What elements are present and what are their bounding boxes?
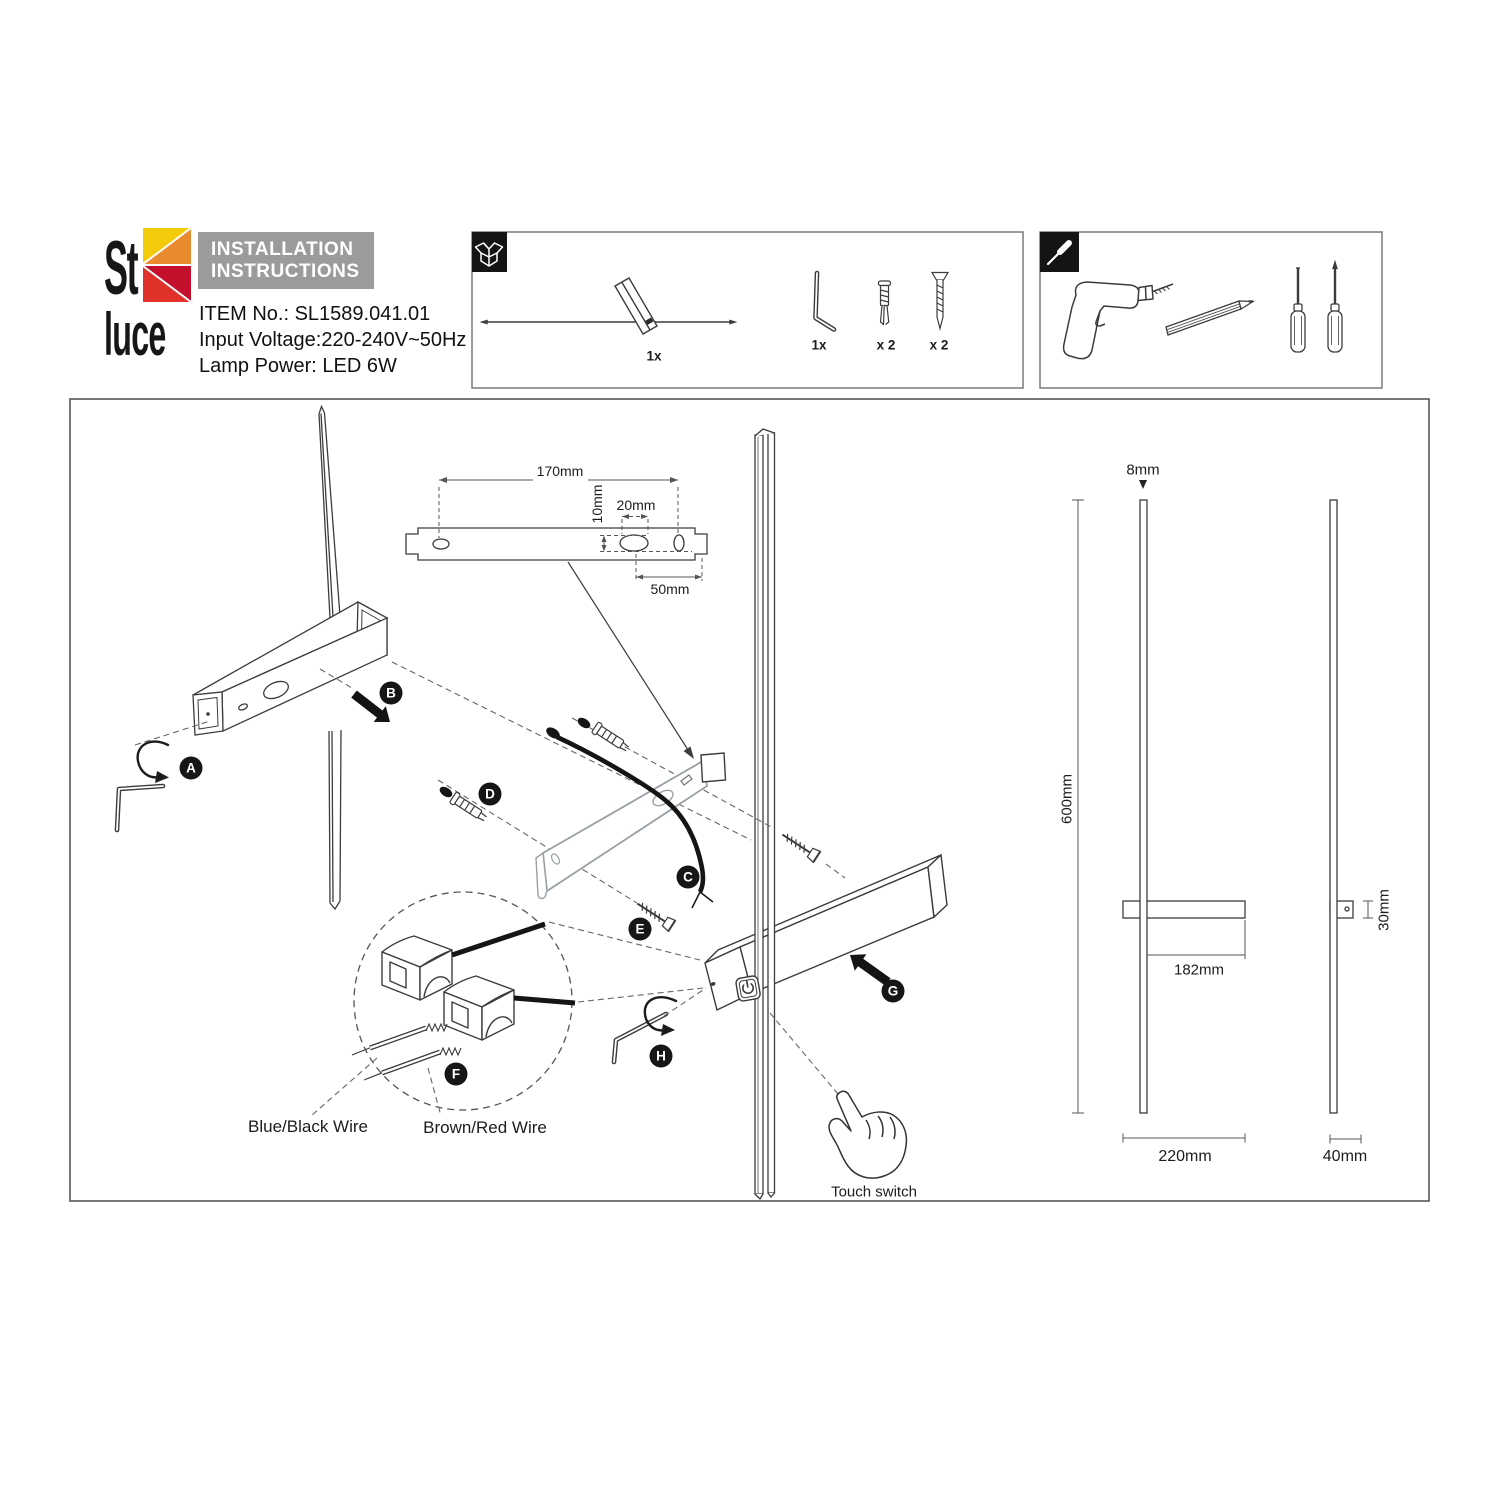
package-icon [472, 232, 507, 272]
touch-guide-line [770, 1013, 838, 1094]
wall-plug-quantity: x 2 [877, 338, 896, 353]
step-g-arrow [850, 954, 891, 985]
lamp-quantity: 1x [646, 349, 661, 364]
title-line1: INSTALLATION [211, 239, 374, 261]
step-b-badge: B [380, 682, 403, 705]
logo-text-luce: luce [104, 298, 166, 369]
drill-drawing [1064, 282, 1173, 359]
wall-plug-drawing [879, 281, 891, 325]
wall-rod [755, 429, 775, 1199]
tools-icon [1040, 232, 1079, 272]
lamp-drawing [482, 278, 735, 334]
step-g-badge: G [882, 980, 905, 1003]
input-voltage: Input Voltage:220-240V~50Hz [199, 327, 466, 353]
lamp-power: Lamp Power: LED 6W [199, 353, 466, 379]
dim-10mm: 10mm [589, 485, 605, 524]
dim-220mm: 220mm [1158, 1148, 1211, 1166]
diagram-art [0, 0, 1500, 1500]
title-banner: INSTALLATION INSTRUCTIONS [198, 232, 374, 289]
dim-182mm: 182mm [1174, 962, 1224, 979]
dim-30mm: 30mm [1376, 889, 1393, 931]
pencil-drawing [1166, 301, 1253, 335]
main-diagram-frame [70, 399, 1429, 1201]
title-line2: INSTRUCTIONS [211, 261, 374, 283]
hex-key-drawing [816, 273, 835, 330]
step-f-badge: F [445, 1063, 468, 1086]
bracket-dimension-drawing [406, 528, 707, 560]
dim-600mm: 600mm [1059, 774, 1076, 824]
front-view-dimensions [1072, 480, 1245, 1143]
logo-color-square-icon [143, 228, 191, 302]
screw-drawing [932, 273, 948, 329]
side-view-dimensions [1330, 500, 1373, 1144]
package-contents-box [472, 232, 1382, 388]
step-a-hex-key [117, 742, 169, 830]
step-h-badge: H [650, 1045, 673, 1068]
item-number: ITEM No.: SL1589.041.01 [199, 301, 466, 327]
screw-quantity: x 2 [930, 338, 949, 353]
dim-40mm: 40mm [1323, 1148, 1367, 1166]
wall-bracket-iso [438, 716, 845, 932]
dim-170mm: 170mm [537, 463, 584, 479]
neutral-wire-label: Blue/Black Wire [248, 1117, 368, 1137]
step-a-badge: A [180, 757, 203, 780]
live-wire-label: Brown/Red Wire [423, 1118, 547, 1138]
screwdrivers-drawing [1291, 262, 1342, 352]
dim-20mm: 20mm [617, 497, 656, 513]
left-lamp-assembly [193, 407, 387, 910]
step-d-badge: D [479, 783, 502, 806]
power-button [735, 975, 761, 1001]
installation-instructions-sheet: St luce INSTALLATION INSTRUCTIONS ITEM N… [0, 0, 1500, 1500]
product-info: ITEM No.: SL1589.041.01 Input Voltage:22… [199, 301, 466, 379]
bracket-dimension-lines [439, 477, 702, 759]
step-e-badge: E [629, 918, 652, 941]
dim-50mm: 50mm [651, 581, 690, 597]
step-c-badge: C [677, 866, 700, 889]
dim-8mm: 8mm [1126, 462, 1159, 479]
pointing-hand [829, 1091, 906, 1178]
hex-key-quantity: 1x [811, 338, 826, 353]
touch-switch-label: Touch switch [831, 1184, 917, 1201]
slide-direction-line [392, 662, 751, 840]
